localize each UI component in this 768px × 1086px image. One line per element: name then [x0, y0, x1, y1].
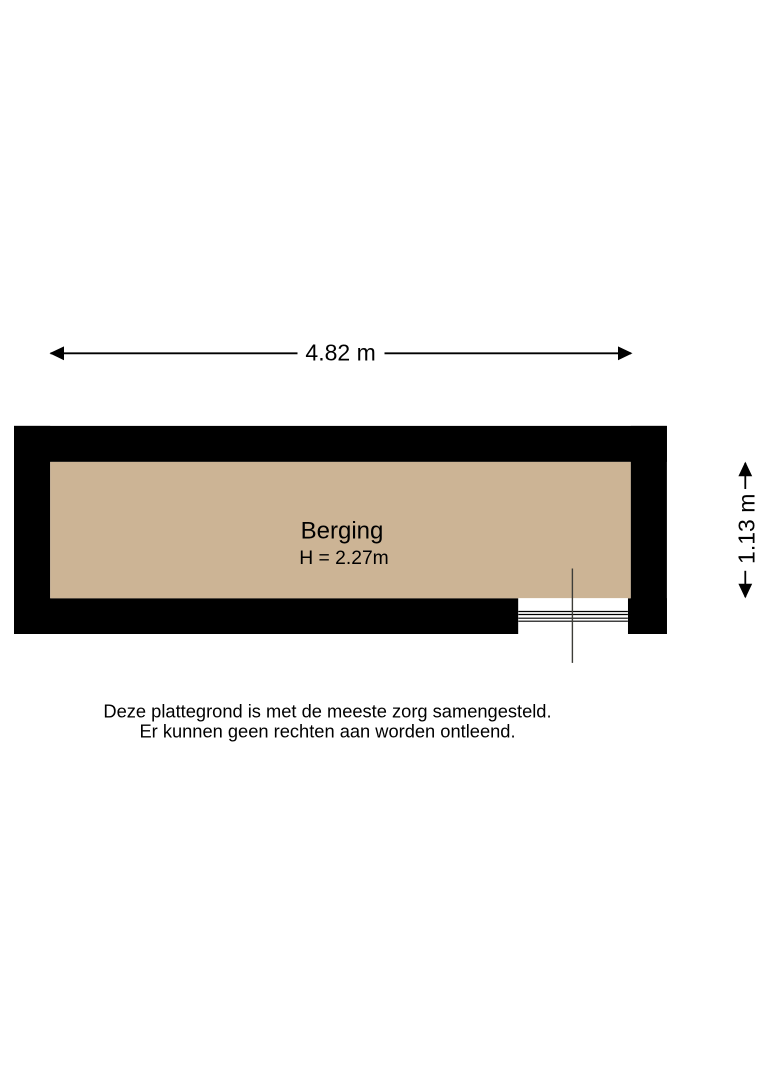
svg-text:Deze plattegrond is met de mee: Deze plattegrond is met de meeste zorg s…	[103, 701, 551, 722]
svg-text:Berging: Berging	[301, 518, 384, 545]
svg-text:H = 2.27m: H = 2.27m	[299, 548, 389, 569]
svg-text:1.13 m: 1.13 m	[734, 494, 760, 564]
svg-text:4.82 m: 4.82 m	[305, 339, 375, 365]
svg-text:Er kunnen geen rechten aan wor: Er kunnen geen rechten aan worden ontlee…	[139, 720, 515, 741]
